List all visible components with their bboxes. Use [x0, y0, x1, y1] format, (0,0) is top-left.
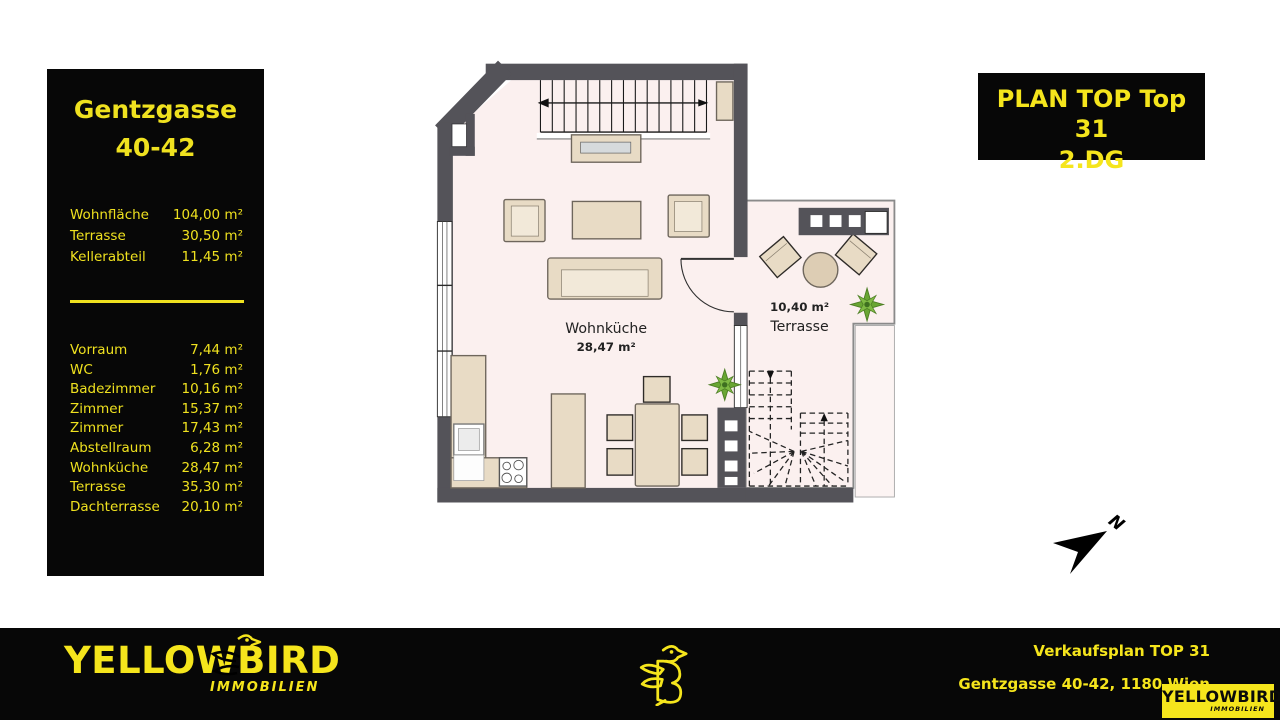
area-summary: Wohnfläche104,00 m² Terrasse30,50 m² Kel…: [70, 205, 243, 268]
floor-plan: Wohnküche 28,47 m² 10,40 m² Terrasse: [400, 50, 940, 570]
summary-label: Wohnfläche: [70, 205, 149, 226]
room-row: Zimmer15,37 m²: [70, 400, 243, 420]
room-row: Wohnküche28,47 m²: [70, 459, 243, 479]
roof-edge-strip: [855, 326, 894, 498]
summary-value: 30,50 m²: [181, 226, 243, 247]
room-label: Badezimmer: [70, 380, 155, 400]
summary-label: Terrasse: [70, 226, 126, 247]
coffee-table: [572, 201, 640, 238]
label-terrasse-area: 10,40 m²: [770, 300, 829, 314]
footer: YELLOWB IRD IMMOBILIEN Verkaufsplan TOP …: [0, 628, 1280, 720]
summary-label: Kellerabteil: [70, 247, 146, 268]
project-title: Gentzgasse 40-42: [47, 91, 264, 167]
wall-right-upper: [734, 64, 748, 258]
room-row: Badezimmer10,16 m²: [70, 380, 243, 400]
summary-row: Terrasse30,50 m²: [70, 226, 243, 247]
window-left: [437, 222, 452, 417]
wall-bottom: [437, 488, 747, 503]
footer-plan-title: Verkaufsplan TOP 31: [958, 642, 1210, 660]
yellowbird-logo-small: YELLOWBIRD IMMOBILIEN: [1162, 684, 1274, 718]
room-label: Dachterrasse: [70, 498, 160, 518]
info-panel: Gentzgasse 40-42 Wohnfläche104,00 m² Ter…: [47, 69, 264, 576]
room-value: 17,43 m²: [181, 419, 243, 439]
label-wohnkueche: Wohnküche: [565, 321, 647, 337]
plan-badge: PLAN TOP Top 31 2.DG: [978, 73, 1205, 160]
dining-chair: [607, 449, 633, 475]
panel-divider: [70, 300, 244, 303]
project-title-line1: Gentzgasse: [47, 91, 264, 129]
summary-value: 11,45 m²: [181, 247, 243, 268]
summary-row: Kellerabteil11,45 m²: [70, 247, 243, 268]
wardrobe: [717, 82, 733, 120]
room-label: Terrasse: [70, 478, 126, 498]
north-arrow: N: [1040, 500, 1140, 585]
room-label: Wohnküche: [70, 459, 148, 479]
north-label: N: [1104, 511, 1128, 536]
room-row: Abstellraum6,28 m²: [70, 439, 243, 459]
room-label: Abstellraum: [70, 439, 151, 459]
summary-value: 104,00 m²: [173, 205, 243, 226]
sales-floorplan-page: Gentzgasse 40-42 Wohnfläche104,00 m² Ter…: [0, 0, 1280, 720]
room-value: 20,10 m²: [181, 498, 243, 518]
room-value: 15,37 m²: [181, 400, 243, 420]
label-wohnkueche-area: 28,47 m²: [577, 340, 636, 354]
room-value: 10,16 m²: [181, 380, 243, 400]
yellowbird-logo: YELLOWB IRD: [64, 640, 340, 682]
room-label: Vorraum: [70, 341, 127, 361]
room-value: 7,44 m²: [190, 341, 243, 361]
room-value: 35,30 m²: [181, 478, 243, 498]
project-title-line2: 40-42: [47, 129, 264, 167]
bird-icon: [210, 626, 268, 684]
north-arrow-pointer: [1053, 531, 1107, 574]
wall-right-block: [734, 312, 748, 326]
room-value: 1,76 m²: [190, 361, 243, 381]
small-logo-word: YELLOWBIRD: [1162, 687, 1274, 707]
dining-chair: [644, 377, 670, 403]
summary-row: Wohnfläche104,00 m²: [70, 205, 243, 226]
room-row: Vorraum7,44 m²: [70, 341, 243, 361]
wall-niche: [452, 124, 467, 147]
plan-badge-line2: 2.DG: [978, 144, 1205, 176]
tv: [581, 142, 631, 153]
plan-badge-line1: PLAN TOP Top 31: [978, 84, 1205, 144]
terrace-planter: [799, 208, 889, 235]
wall-niche-bottom: [449, 147, 475, 156]
dining-table: [635, 404, 679, 486]
brand-subtitle: IMMOBILIEN: [210, 680, 319, 695]
room-row: Dachterrasse20,10 m²: [70, 498, 243, 518]
wall-stair-bottom: [746, 488, 854, 503]
room-value: 28,47 m²: [181, 459, 243, 479]
dining-chair: [682, 415, 708, 441]
wall-top: [486, 64, 748, 80]
dining-chair: [607, 415, 633, 441]
brand-text-end: IRD: [266, 640, 340, 682]
room-row: WC1,76 m²: [70, 361, 243, 381]
wall-squares: [717, 408, 745, 488]
terrace-table: [803, 253, 838, 288]
room-list: Vorraum7,44 m² WC1,76 m² Badezimmer10,16…: [70, 341, 243, 517]
room-label: Zimmer: [70, 400, 123, 420]
cooktop: [499, 458, 526, 486]
room-label: WC: [70, 361, 93, 381]
bird-logo-icon: [638, 640, 694, 706]
room-row: Zimmer17,43 m²: [70, 419, 243, 439]
kitchen-peninsula: [551, 394, 585, 488]
window-terrace: [734, 326, 747, 408]
brand-bird-letter: B: [237, 640, 266, 682]
room-value: 6,28 m²: [190, 439, 243, 459]
room-row: Terrasse35,30 m²: [70, 478, 243, 498]
room-label: Zimmer: [70, 419, 123, 439]
dining-chair: [682, 449, 708, 475]
label-terrasse: Terrasse: [769, 319, 828, 335]
